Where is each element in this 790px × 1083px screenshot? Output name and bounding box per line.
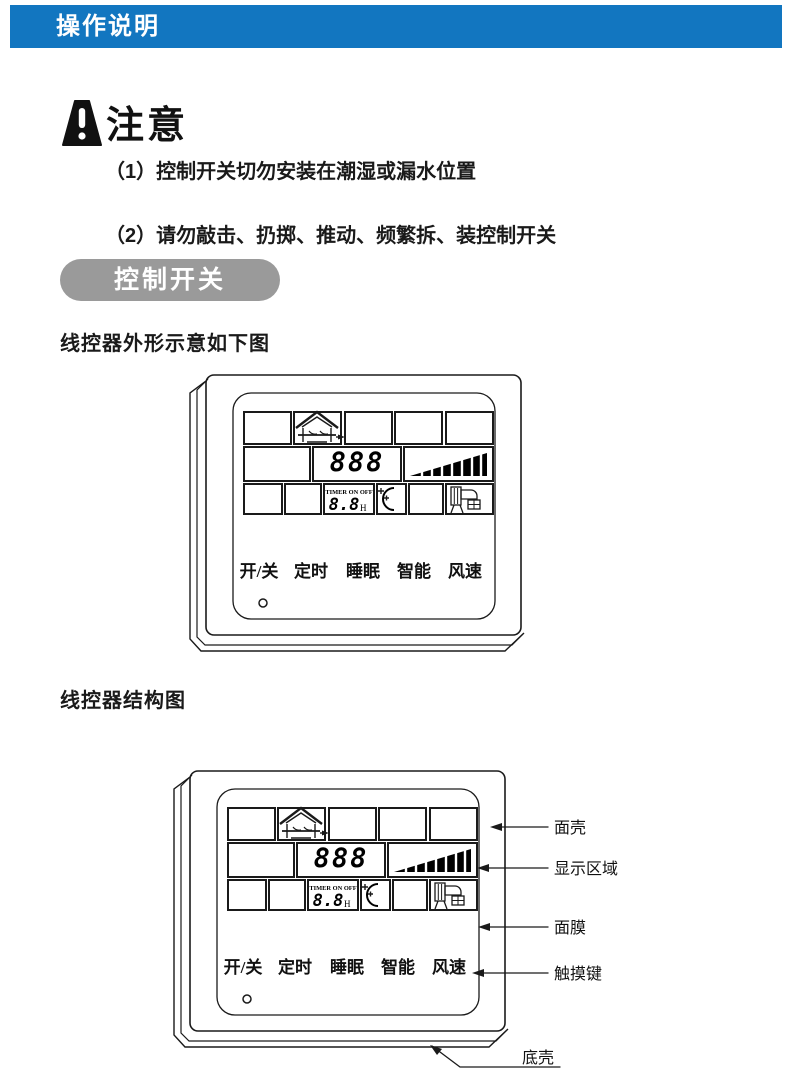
callout-display-area: 显示区域 — [554, 860, 618, 878]
controller-figure-outline: 888 TIMER ON OFF — [186, 367, 531, 662]
manual-page: 操作说明 注意 （1）控制开关切勿安装在潮湿或漏水位置 （2）请勿敲击、扔掷、推… — [0, 0, 790, 1083]
page-title: 操作说明 — [56, 5, 160, 48]
warning-exclamation-icon — [62, 99, 102, 147]
section-pill: 控制开关 — [60, 259, 280, 301]
header-bar: 操作说明 — [10, 5, 782, 48]
callout-bottom-shell: 底壳 — [522, 1049, 554, 1067]
notice-title: 注意 — [106, 94, 188, 149]
notice-item-1: （1）控制开关切勿安装在潮湿或漏水位置 — [105, 161, 476, 183]
callout-touch-keys: 触摸键 — [554, 965, 602, 983]
figure2-heading: 线控器结构图 — [60, 684, 186, 713]
notice-item-2: （2）请勿敲击、扔掷、推动、频繁拆、装控制开关 — [105, 225, 556, 247]
arrow-left-icon — [490, 823, 502, 831]
controller-figure-structure: 面壳 显示区域 面膜 触摸键 底壳 — [160, 753, 680, 1078]
callout-front-shell: 面壳 — [554, 819, 586, 837]
notice-items: （1）控制开关切勿安装在潮湿或漏水位置 （2）请勿敲击、扔掷、推动、频繁拆、装控… — [105, 156, 556, 252]
arrow-left-icon — [478, 923, 490, 931]
controller-figure-1 — [190, 375, 524, 651]
controller-figure-2 — [174, 771, 508, 1047]
arrow-left-icon — [472, 969, 484, 977]
figure1-heading: 线控器外形示意如下图 — [60, 327, 270, 356]
callout-membrane: 面膜 — [554, 919, 586, 937]
